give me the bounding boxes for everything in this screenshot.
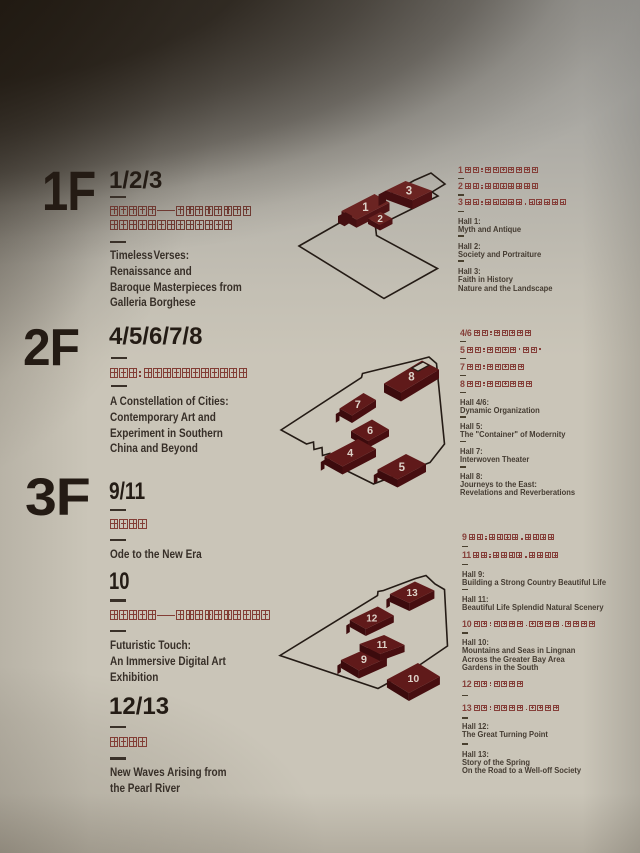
- svg-text:3: 3: [406, 186, 412, 198]
- svg-text:1: 1: [362, 202, 369, 214]
- svg-text:5: 5: [399, 462, 406, 474]
- svg-text:2: 2: [377, 214, 383, 225]
- svg-text:11: 11: [377, 640, 388, 651]
- svg-text:8: 8: [408, 372, 415, 384]
- svg-text:9: 9: [361, 654, 367, 666]
- svg-text:4: 4: [347, 448, 354, 460]
- svg-text:6: 6: [367, 425, 373, 437]
- svg-text:10: 10: [408, 673, 420, 685]
- svg-text:13: 13: [407, 588, 419, 599]
- svg-text:12: 12: [366, 613, 378, 624]
- svg-text:7: 7: [355, 399, 361, 411]
